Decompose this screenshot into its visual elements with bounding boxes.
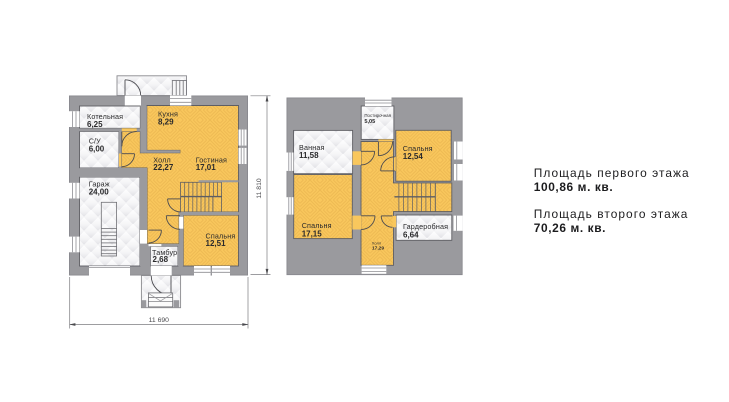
svg-text:Постирочная: Постирочная: [364, 113, 391, 118]
svg-text:11 810: 11 810: [256, 178, 263, 199]
svg-text:6,00: 6,00: [89, 145, 105, 154]
svg-text:12,51: 12,51: [206, 239, 227, 248]
svg-text:Холл: Холл: [372, 240, 382, 245]
svg-text:100,86 м. кв.: 100,86 м. кв.: [534, 180, 613, 194]
svg-text:2,68: 2,68: [153, 255, 169, 264]
svg-text:6,25: 6,25: [87, 120, 103, 129]
svg-text:70,26 м. кв.: 70,26 м. кв.: [534, 221, 606, 235]
svg-text:17,01: 17,01: [196, 163, 217, 172]
svg-text:6,64: 6,64: [403, 230, 419, 239]
svg-text:17,29: 17,29: [372, 245, 384, 251]
svg-text:Площадь второго этажа: Площадь второго этажа: [534, 207, 689, 221]
svg-text:11 690: 11 690: [149, 317, 170, 324]
svg-text:8,29: 8,29: [158, 117, 174, 126]
svg-text:Площадь первого этажа: Площадь первого этажа: [534, 166, 690, 180]
svg-text:12,54: 12,54: [403, 152, 424, 161]
svg-text:11,58: 11,58: [299, 151, 319, 160]
svg-text:24,00: 24,00: [89, 187, 110, 196]
svg-text:5,05: 5,05: [364, 119, 375, 125]
svg-text:17,15: 17,15: [302, 229, 323, 238]
svg-text:22,27: 22,27: [153, 163, 174, 172]
